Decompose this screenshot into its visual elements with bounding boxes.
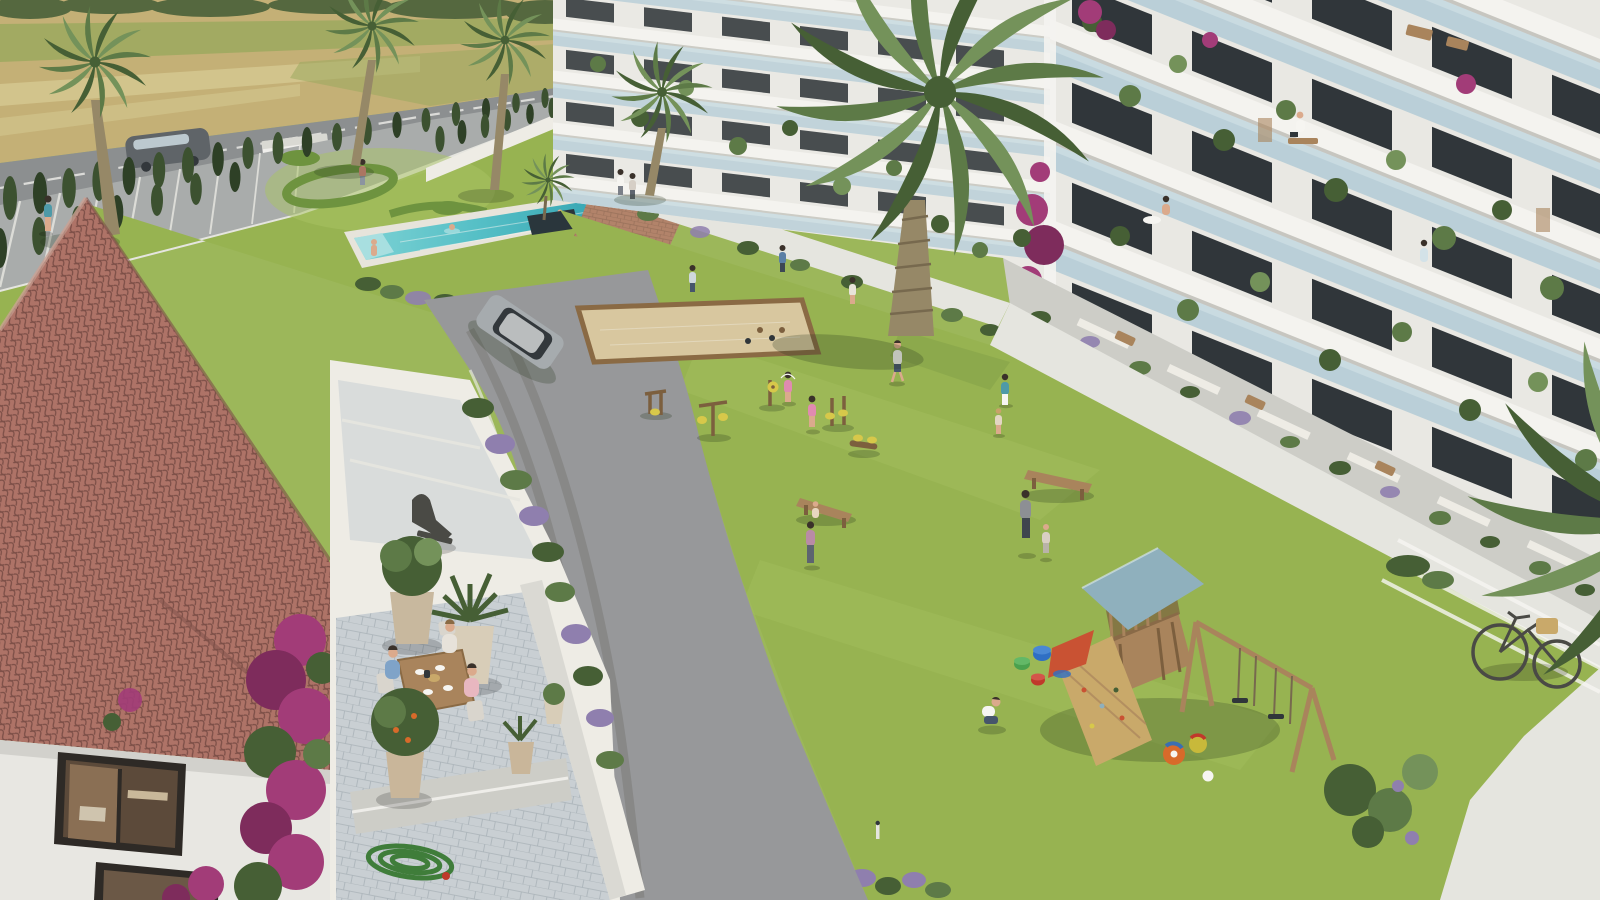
bicycle-basket xyxy=(1536,618,1558,634)
bookshelf-hint xyxy=(1258,118,1272,142)
swimmer-standing xyxy=(371,239,377,256)
building-corner xyxy=(1044,0,1056,326)
foreground-window xyxy=(54,752,186,856)
person xyxy=(617,169,624,195)
balcony-bougainvillea xyxy=(1202,32,1218,48)
render-canvas: Aerial architectural rendering of a resi… xyxy=(0,0,1600,900)
person xyxy=(849,277,856,304)
bookshelf-hint xyxy=(1536,208,1550,232)
architectural-render: Aerial architectural rendering of a resi… xyxy=(0,0,1600,900)
person xyxy=(779,245,786,272)
chair xyxy=(466,700,485,722)
person xyxy=(689,265,696,292)
person-tending-plants xyxy=(1420,240,1428,262)
balcony-bougainvillea xyxy=(1456,74,1476,94)
